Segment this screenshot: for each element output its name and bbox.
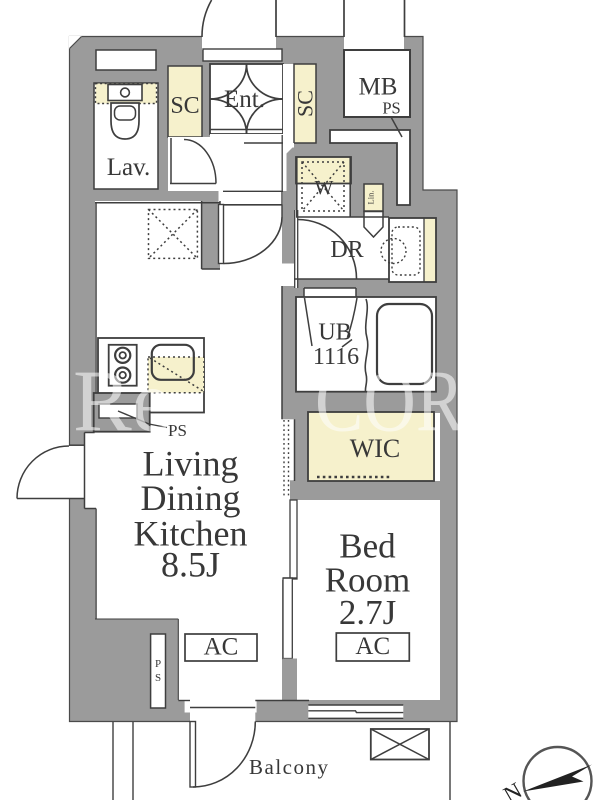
svg-text:AC: AC <box>204 634 239 661</box>
svg-text:PS: PS <box>382 99 400 118</box>
svg-text:PS: PS <box>168 421 187 440</box>
svg-text:2.7J: 2.7J <box>339 593 396 632</box>
svg-text:Dining: Dining <box>140 478 240 518</box>
svg-text:W: W <box>315 177 334 199</box>
svg-text:UB: UB <box>318 320 351 346</box>
svg-text:COR: COR <box>315 353 464 450</box>
svg-text:Balcony: Balcony <box>249 755 329 779</box>
svg-text:SC: SC <box>293 90 318 117</box>
svg-text:AC: AC <box>355 633 390 660</box>
svg-text:S: S <box>155 672 161 684</box>
svg-text:Lin.: Lin. <box>366 191 376 205</box>
svg-text:SC: SC <box>170 93 199 119</box>
svg-text:Re: Re <box>73 354 171 451</box>
svg-text:8.5J: 8.5J <box>161 545 220 585</box>
svg-text:MB: MB <box>359 74 398 101</box>
svg-text:Ent.: Ent. <box>224 86 265 113</box>
svg-text:Lav.: Lav. <box>107 154 151 181</box>
svg-text:DR: DR <box>330 237 363 263</box>
svg-text:P: P <box>155 658 161 670</box>
